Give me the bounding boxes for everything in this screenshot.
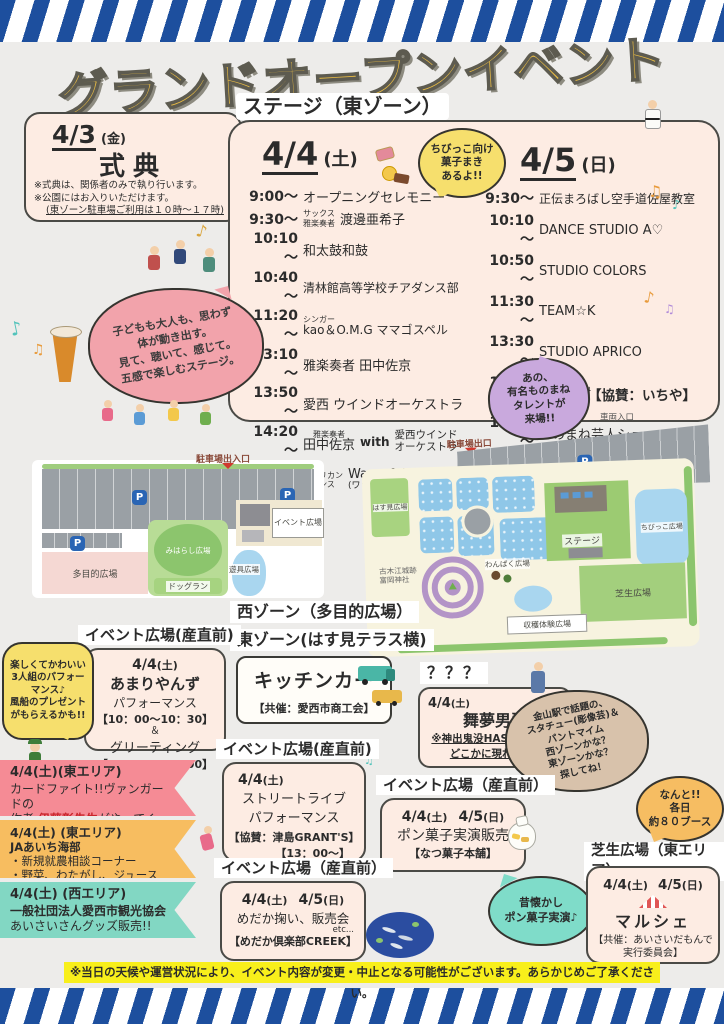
amariyanzu-card: 4/4(土) あまりやんず パフォーマンス 【10：00～10：30】 ＆ グリ… bbox=[84, 648, 226, 751]
schedule-row: 11:20～ シンガー kao＆O.M.G ママゴスペル bbox=[242, 308, 474, 344]
music-note-icon: ♪ bbox=[672, 198, 680, 213]
map-area-tamokuteki: 多目的広場 bbox=[42, 552, 148, 594]
ribbon-line: JAあいち海部 bbox=[10, 840, 166, 854]
ceremony-note-3: (東ゾーン駐車場ご利用は１０時～１７時) bbox=[46, 205, 224, 218]
event-date: 4/4 bbox=[242, 892, 267, 908]
map-area-stage: ステージ bbox=[544, 480, 631, 561]
time: 10:40～ bbox=[242, 270, 298, 306]
parking-icon: P bbox=[132, 490, 147, 505]
event-date: 4/5 bbox=[299, 892, 324, 908]
ribbon-line: カードファイト!!ヴァンガードの bbox=[10, 782, 166, 813]
ribbon-line: 4/4(土) (西エリア) bbox=[10, 887, 166, 904]
tent-icon bbox=[639, 895, 667, 908]
amariyanzu-bubble: 楽しくてかわいい 3人組のパフォー マンス♪ 風船のプレゼント がもらえるかも!… bbox=[2, 642, 94, 740]
day1-date: 4/4 bbox=[262, 138, 318, 175]
ceremony-note-2: ※公園にはお入りいただけます。 bbox=[34, 193, 224, 206]
schedule-row: 10:10～ DANCE STUDIO A♡ bbox=[478, 213, 714, 249]
schedule-row: 9:00～ オープニングセレモニー bbox=[242, 186, 474, 206]
day1-dow: (土) bbox=[323, 149, 357, 170]
time: 10:10～ bbox=[242, 231, 298, 267]
map-area-hasumi: はす見広場 bbox=[370, 478, 410, 537]
performer-annotation: サックス 雅楽奏者 bbox=[303, 209, 335, 227]
time: 10:10～ bbox=[478, 213, 534, 249]
ceremony-name: 式典 bbox=[26, 146, 240, 183]
performer: オープニングセレモニー bbox=[303, 187, 445, 206]
amariyanzu-line: パフォーマンス bbox=[86, 694, 224, 711]
schedule-row: 13:50～ 愛西 ウインドオーケストラ bbox=[242, 385, 474, 421]
map-east-zone: 駐車場出口 P はす見広場 bbox=[348, 412, 724, 663]
schedule-row: 10:50～ STUDIO COLORS bbox=[478, 253, 714, 289]
ribbon-kanko: 4/4(土) (西エリア) 一般社団法人愛西市観光協会 あいさいさんグッズ販売!… bbox=[0, 882, 196, 938]
music-note-icon: ♫ bbox=[32, 342, 45, 358]
performer: 愛西 ウインドオーケストラ bbox=[303, 394, 463, 413]
performer: 和太鼓和鼓 bbox=[303, 240, 368, 259]
performer: 雅楽奏者 田中佐京 bbox=[303, 355, 411, 374]
time: 10:50～ bbox=[478, 253, 534, 289]
performer: kao＆O.M.G ママゴスペル bbox=[303, 324, 448, 337]
ceremony-note-1: ※式典は、関係者のみで執り行います。 bbox=[34, 180, 224, 193]
music-note-icon: ♫ bbox=[664, 302, 675, 316]
map-shrine-label: 古木江城跡 富岡神社 bbox=[379, 566, 417, 586]
djembe-drum-head-icon bbox=[50, 326, 82, 338]
schedule-row: 13:10～ 雅楽奏者 田中佐京 bbox=[242, 347, 474, 383]
map-area-event-plaza: イベント広場 bbox=[272, 508, 324, 538]
schedule-row: 11:30～ TEAM☆K bbox=[478, 294, 714, 330]
event-date: 4/5 bbox=[459, 809, 484, 825]
zone-label-west: 西ゾーン（多目的広場） bbox=[230, 601, 419, 623]
zone-label-east: 東ゾーン(はす見テラス横) bbox=[230, 629, 434, 651]
map-area-harvest: 収穫体験広場 bbox=[507, 614, 588, 635]
schedule-row: 10:10～ 和太鼓和鼓 bbox=[242, 231, 474, 267]
ribbon-line: 4/4(土) (東エリア) bbox=[10, 825, 166, 840]
time: 11:30～ bbox=[478, 294, 534, 330]
event-date: 4/4 bbox=[428, 696, 451, 711]
pon-gashi-card: 4/4(土) 4/5(日) ポン菓子実演販売 【なつ菓子本舗】 bbox=[380, 798, 526, 872]
ribbon-line: ・新規就農相談コーナー bbox=[10, 854, 166, 868]
day2-date: 4/5 bbox=[520, 144, 576, 181]
map-area-wanpaku: わんぱく広場 bbox=[485, 558, 530, 571]
marche-card: 4/4(土) 4/5(日) マルシェ 【共催：あいさいだもんで 実行委員会】 bbox=[586, 866, 720, 964]
marche-sponsor: 【共催：あいさいだもんで 実行委員会】 bbox=[588, 934, 718, 960]
candy-icon bbox=[375, 146, 395, 162]
street-live-line: ストリートライブ bbox=[224, 788, 364, 807]
stage-zone-header: ステージ（東ゾーン） bbox=[236, 93, 449, 120]
medaka-card: 4/4(土) 4/5(日) めだか掬い、販売会 etc... 【めだか倶楽部CR… bbox=[220, 881, 366, 961]
marche-name: マルシェ bbox=[588, 908, 718, 932]
flyer-page: グランドオープンイベント 4/3 (金) 式典 ※式典は、関係者のみで執り行いま… bbox=[0, 0, 724, 1024]
amariyanzu-name: あまりやんず bbox=[86, 673, 224, 694]
map-area-miharashi: みはらし広場 bbox=[154, 524, 222, 576]
performer: STUDIO COLORS bbox=[539, 264, 647, 279]
time: 9:30～ bbox=[242, 209, 298, 229]
time: 9:00～ bbox=[242, 186, 298, 206]
street-live-location-label: イベント広場(産直前) bbox=[216, 739, 379, 759]
time: 13:50～ bbox=[242, 385, 298, 421]
event-date: 4/4 bbox=[132, 657, 157, 673]
stage-schedule-panel: 4/4 (土) ちびっこ向け 菓子まき あるよ!! 9:00～ オープニングセレ… bbox=[228, 120, 720, 422]
event-date: 4/4 bbox=[603, 877, 627, 893]
amariyanzu-line: ＆ bbox=[86, 727, 224, 737]
map-area-chibikko: ちびっこ広場 bbox=[634, 488, 689, 566]
medaka-location-label: イベント広場（産直前） bbox=[214, 858, 393, 878]
stage-promo-text: 子どもも大人も、思わず 体が動き出す。 見て、聴いて、感じて。 五感で楽しむステ… bbox=[111, 304, 241, 388]
ribbon-line: 4/4(土)(東エリア) bbox=[10, 765, 166, 782]
kitchen-car-sponsor: 【共催：愛西市商工会】 bbox=[238, 700, 390, 716]
parking-icon: P bbox=[70, 536, 85, 551]
amariyanzu-line: グリーティング bbox=[86, 737, 224, 756]
event-date: 4/4 bbox=[402, 809, 427, 825]
map-west-zone: P P P 多目的広場 みはらし広場 ドッグラン 遊具広場 イベント広場 bbox=[32, 460, 324, 598]
pon-gashi-bubble: 昔懐かし ポン菓子実演♪ bbox=[488, 876, 594, 946]
schedule-row: 10:40～ 清林館高等学校チアダンス部 bbox=[242, 270, 474, 306]
medaka-line: 【めだか倶楽部CREEK】 bbox=[222, 933, 364, 949]
pon-gashi-line: ポン菓子実演販売 bbox=[382, 825, 524, 845]
ceremony-dow: (金) bbox=[101, 132, 126, 147]
pon-gashi-line: 【なつ菓子本舗】 bbox=[382, 845, 524, 861]
performer: STUDIO APRICO bbox=[539, 345, 642, 360]
map-park-east: はす見広場 ステージ ちびっこ広場 bbox=[362, 458, 700, 657]
map-tree-icon bbox=[503, 574, 511, 582]
music-note-icon: ♪ bbox=[8, 317, 24, 341]
day2-dow: (日) bbox=[581, 155, 615, 176]
chocolate-icon bbox=[393, 173, 409, 184]
music-note-icon: ♪ bbox=[194, 221, 209, 243]
amariyanzu-line: 【10：00～10：30】 bbox=[86, 711, 224, 727]
ribbon-ja: 4/4(土) (東エリア) JAあいち海部 ・新規就農相談コーナー ・野菜、わた… bbox=[0, 820, 196, 878]
event-date: 4/4 bbox=[238, 772, 263, 788]
map-tree-icon bbox=[491, 571, 500, 580]
map-spiral-mound bbox=[421, 555, 485, 619]
ribbon-line: あいさいさんグッズ販売!! bbox=[10, 919, 166, 934]
schedule-row: 9:30～ サックス 雅楽奏者 渡邊亜希子 bbox=[242, 209, 474, 229]
performer: TEAM☆K bbox=[539, 304, 595, 319]
entrance-marker-icon bbox=[222, 463, 234, 475]
amariyanzu-location-label: イベント広場(産直前) bbox=[78, 625, 241, 645]
street-live-line: 【協賛：津島GRANT'S】 bbox=[224, 829, 364, 845]
footer-disclaimer: ※当日の天候や運営状況により、イベント内容が変更・中止となる可能性がございます。… bbox=[64, 962, 660, 983]
mystery-bubble-text: 金山駅で話題の、 スタチュー(彫像芸)＆ パントマイム 西ゾーンかな？ 東ゾーン… bbox=[523, 695, 631, 787]
street-live-line: パフォーマンス bbox=[224, 807, 364, 826]
ceremony-card: 4/3 (金) 式典 ※式典は、関係者のみで執り行います。 ※公園にはお入りいた… bbox=[24, 112, 242, 222]
music-note-icon: ♫ bbox=[648, 182, 662, 201]
stage-sponsor: 【協賛：いちや】 bbox=[588, 384, 696, 404]
performer: 渡邊亜希子 bbox=[340, 209, 405, 228]
pon-gashi-location-label: イベント広場（産直前） bbox=[376, 775, 555, 795]
ribbon-line: 一般社団法人愛西市観光協会 bbox=[10, 904, 166, 919]
street-live-card: 4/4(土) ストリートライブ パフォーマンス 【協賛：津島GRANT'S】 【… bbox=[222, 762, 366, 862]
time: 9:30～ bbox=[478, 188, 534, 208]
performer: DANCE STUDIO A♡ bbox=[539, 223, 663, 238]
event-date: 4/5 bbox=[658, 877, 682, 893]
map-area-shibafu: 芝生広場 bbox=[579, 562, 687, 622]
map-vehicle-entrance-label: 車両入口 bbox=[600, 411, 634, 423]
map-pond-small bbox=[514, 585, 553, 612]
map-area-dogrun: ドッグラン bbox=[154, 578, 222, 594]
mystery-bubble-tail bbox=[498, 712, 521, 735]
performer: 清林館高等学校チアダンス部 bbox=[303, 279, 459, 296]
stage-promo-bubble: 子どもも大人も、思わず 体が動き出す。 見て、聴いて、感じて。 五感で楽しむステ… bbox=[88, 288, 264, 404]
mystery-label: ？？？ bbox=[420, 662, 488, 684]
ribbon-vanguard: 4/4(土)(東エリア) カードファイト!!ヴァンガードの 作者 伊藤彰先生がや… bbox=[0, 760, 196, 816]
